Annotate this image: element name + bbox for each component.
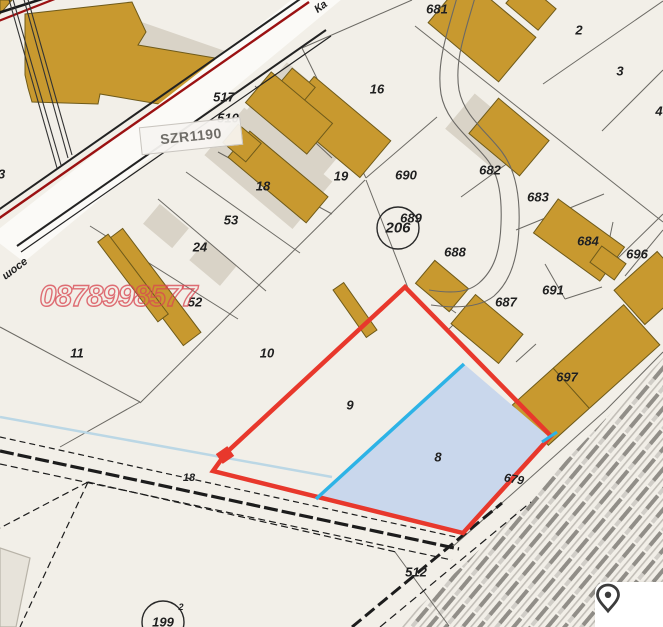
map-label: 3 [616, 64, 623, 79]
map-label: 53 [224, 213, 238, 228]
map-label: 681 [426, 2, 448, 17]
map-label: 16 [370, 82, 384, 97]
map-label: 206 [385, 220, 410, 237]
map-canvas [0, 0, 663, 627]
map-label: 690 [395, 168, 417, 183]
map-label: 52 [188, 295, 202, 310]
map-label: 33 [0, 167, 5, 182]
map-label: 696 [626, 247, 648, 262]
map-label: 517 [213, 90, 235, 105]
map-label: 4 [655, 104, 662, 119]
map-label: 24 [193, 240, 207, 255]
map-label: 697 [556, 370, 578, 385]
map-label: 9 [346, 398, 353, 413]
map-label: 512 [405, 565, 427, 580]
map-label: 687 [495, 295, 517, 310]
map-label: 18 [183, 472, 195, 484]
cadastral-map: 6812341651751018196906826836846966892066… [0, 0, 663, 627]
map-label: 688 [444, 245, 466, 260]
point-circles [142, 207, 419, 627]
map-label: 18 [256, 179, 270, 194]
map-label: 199 [152, 615, 174, 627]
map-label: 8 [434, 450, 441, 465]
map-label: 691 [542, 283, 564, 298]
map-label: 10 [260, 346, 274, 361]
location-pin-icon [595, 582, 621, 614]
map-label: 19 [334, 169, 348, 184]
map-label: 682 [479, 163, 501, 178]
map-pin-button[interactable] [595, 582, 663, 627]
map-label: 11 [70, 346, 84, 361]
map-label: 684 [577, 234, 599, 249]
map-label: 2 [575, 23, 582, 38]
road-code-label: SZR1190 [159, 125, 222, 147]
map-label: 683 [527, 190, 549, 205]
map-label: 2 [178, 602, 183, 612]
